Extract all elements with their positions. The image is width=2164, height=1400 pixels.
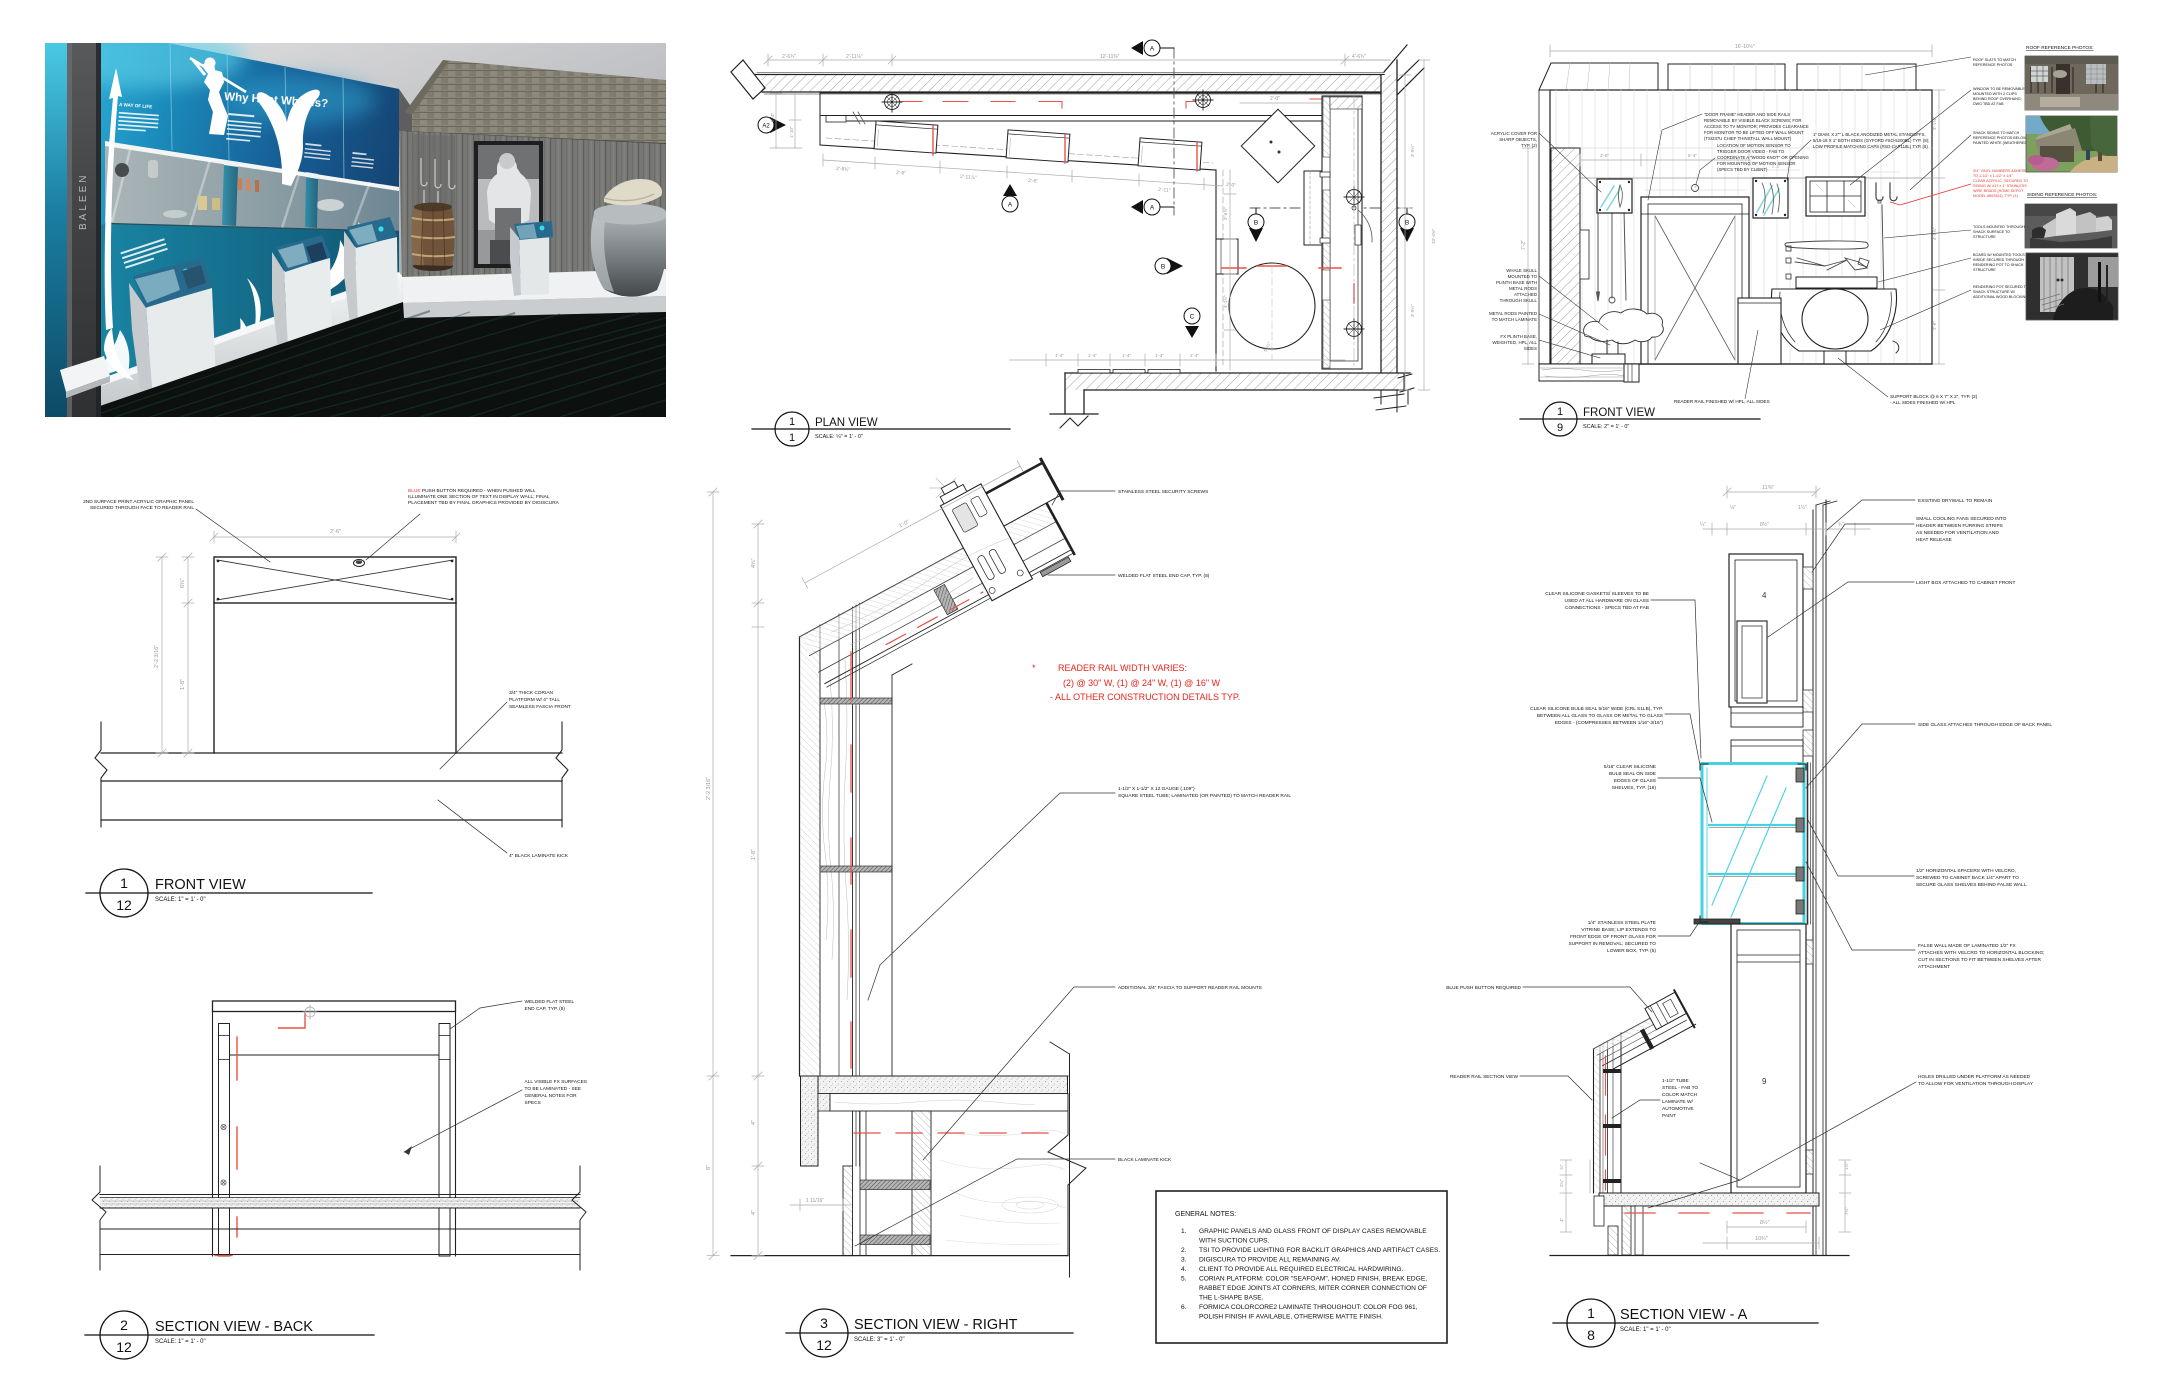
svg-text:SUPPORT BLOCK @ 6 X 7" X 2", T: SUPPORT BLOCK @ 6 X 7" X 2", TYP. (2) bbox=[1890, 394, 1978, 399]
svg-text:3/4" THICK CORIAN: 3/4" THICK CORIAN bbox=[509, 690, 554, 696]
svg-text:5/16" CLEAR SILICONE: 5/16" CLEAR SILICONE bbox=[1604, 764, 1656, 770]
svg-text:TO 1-1/2" x 1-1/2" x 1/4": TO 1-1/2" x 1-1/2" x 1/4" bbox=[1973, 174, 2013, 178]
svg-text:2'-11": 2'-11" bbox=[1158, 187, 1171, 194]
svg-text:3/4" VINYL NUMBERS ADHERED: 3/4" VINYL NUMBERS ADHERED bbox=[1973, 169, 2030, 173]
svg-text:8": 8" bbox=[706, 1165, 712, 1170]
svg-text:PAINT: PAINT bbox=[1662, 1113, 1676, 1119]
svg-text:8: 8 bbox=[1587, 1327, 1595, 1343]
svg-text:GENERAL NOTES:: GENERAL NOTES: bbox=[1175, 1211, 1236, 1218]
svg-text:10'-4⅜": 10'-4⅜" bbox=[1431, 228, 1436, 244]
svg-text:4⅝": 4⅝" bbox=[751, 558, 757, 568]
svg-text:5'-4": 5'-4" bbox=[770, 113, 775, 122]
svg-text:BALEEN: BALEEN bbox=[78, 173, 89, 230]
svg-text:FRONT VIEW: FRONT VIEW bbox=[1583, 407, 1655, 419]
svg-text:SECTION VIEW - RIGHT: SECTION VIEW - RIGHT bbox=[854, 1317, 1018, 1333]
svg-text:1'-4": 1'-4" bbox=[1190, 353, 1199, 358]
svg-text:1: 1 bbox=[1587, 1305, 1595, 1321]
svg-text:SECURED THROUGH FACE TO READER: SECURED THROUGH FACE TO READER RAIL bbox=[90, 505, 194, 511]
svg-text:CUT IN SECTIONS TO FIT BETWEEN: CUT IN SECTIONS TO FIT BETWEEN SHELVES A… bbox=[1918, 957, 2041, 963]
svg-text:B: B bbox=[1161, 264, 1165, 271]
svg-text:REFERENCE PHOTOS BELOW -: REFERENCE PHOTOS BELOW - bbox=[1973, 136, 2030, 140]
svg-text:AUTOMOTIVE: AUTOMOTIVE bbox=[1662, 1106, 1694, 1112]
svg-text:2'-6": 2'-6" bbox=[896, 170, 907, 177]
svg-text:5.: 5. bbox=[1181, 1276, 1187, 1283]
svg-text:SPECS: SPECS bbox=[525, 1100, 541, 1106]
svg-text:ACRYLIC COVER FOR: ACRYLIC COVER FOR bbox=[1491, 131, 1537, 136]
svg-text:END CAP, TYP. (8): END CAP, TYP. (8) bbox=[525, 1006, 566, 1012]
svg-text:CLEAR SILICONE BULB SEAL 5/16": CLEAR SILICONE BULB SEAL 5/16" WIDE (CRL… bbox=[1530, 706, 1663, 712]
svg-text:LOWER BOX, TYP. (5): LOWER BOX, TYP. (5) bbox=[1607, 948, 1656, 954]
svg-text:4: 4 bbox=[1762, 591, 1767, 600]
svg-text:GENERAL NOTES FOR: GENERAL NOTES FOR bbox=[525, 1093, 578, 1099]
svg-text:SECTION VIEW - BACK: SECTION VIEW - BACK bbox=[155, 1319, 313, 1335]
svg-text:1: 1 bbox=[789, 432, 795, 444]
svg-text:FOR MONITOR TO BE LIFTED OFF W: FOR MONITOR TO BE LIFTED OFF WALL MOUNT bbox=[1704, 130, 1804, 135]
svg-text:STEEL - FAB TO: STEEL - FAB TO bbox=[1662, 1085, 1698, 1091]
svg-text:SCALE: 1" = 1' - 0": SCALE: 1" = 1' - 0" bbox=[1620, 1327, 1671, 1333]
svg-text:4'-6¾": 4'-6¾" bbox=[1352, 54, 1366, 60]
svg-text:C: C bbox=[1190, 314, 1195, 321]
svg-text:2'-11⅛": 2'-11⅛" bbox=[846, 54, 863, 60]
svg-text:ACCESS TO TV MONITOR; PROVIDES: ACCESS TO TV MONITOR; PROVIDES CLEARANCE bbox=[1704, 124, 1809, 129]
svg-text:COLOR MATCH: COLOR MATCH bbox=[1662, 1092, 1698, 1098]
svg-text:SHACK SURFACE TO: SHACK SURFACE TO bbox=[1973, 230, 2010, 234]
svg-text:LAMINATE W/: LAMINATE W/ bbox=[1662, 1099, 1693, 1105]
svg-text:1'-4": 1'-4" bbox=[1122, 353, 1131, 358]
svg-text:7¼": 7¼" bbox=[1844, 1207, 1849, 1215]
svg-text:2'-0": 2'-0" bbox=[1226, 182, 1237, 189]
svg-text:LIGHT BOX ATTACHED TO CABINET: LIGHT BOX ATTACHED TO CABINET FRONT bbox=[1916, 580, 2015, 586]
svg-text:READER RAIL WIDTH VARIES:: READER RAIL WIDTH VARIES: bbox=[1058, 663, 1187, 673]
svg-text:1'-4": 1'-4" bbox=[1055, 353, 1064, 358]
svg-text:PAINTED WHITE (WEATHERED): PAINTED WHITE (WEATHERED) bbox=[1973, 141, 2028, 145]
svg-text:CLEAR SILICONE GASKETS/ SLEEVE: CLEAR SILICONE GASKETS/ SLEEVES TO BE bbox=[1545, 591, 1649, 597]
svg-text:TO BE LAMINATED - SEE: TO BE LAMINATED - SEE bbox=[525, 1086, 582, 1092]
svg-text:A: A bbox=[1150, 205, 1155, 212]
svg-text:CONNECTIONS - SPECS TBD AT FAB: CONNECTIONS - SPECS TBD AT FAB bbox=[1565, 605, 1649, 611]
svg-text:3: 3 bbox=[820, 1315, 828, 1331]
svg-text:1-1/2" TUBE: 1-1/2" TUBE bbox=[1662, 1078, 1689, 1084]
svg-text:SCREWED TO CABINET BACK 1/4" A: SCREWED TO CABINET BACK 1/4" APART TO bbox=[1916, 875, 2019, 881]
svg-text:4'-1½": 4'-1½" bbox=[1222, 295, 1228, 308]
svg-text:SIDING REFERENCE PHOTOS:: SIDING REFERENCE PHOTOS: bbox=[2027, 192, 2097, 198]
svg-text:BLACK LAMINATE KICK: BLACK LAMINATE KICK bbox=[1118, 1157, 1172, 1163]
svg-text:3'-9½": 3'-9½" bbox=[1409, 304, 1415, 317]
svg-text:8½": 8½" bbox=[1760, 521, 1769, 528]
svg-text:FRONT EDGE OF FRONT GLASS FOR: FRONT EDGE OF FRONT GLASS FOR bbox=[1570, 934, 1656, 940]
svg-text:FRONT VIEW: FRONT VIEW bbox=[155, 877, 246, 893]
svg-text:6.: 6. bbox=[1181, 1304, 1187, 1311]
svg-text:B: B bbox=[1254, 220, 1258, 227]
svg-text:4": 4" bbox=[751, 1210, 757, 1215]
svg-text:GRAPHIC PANELS AND GLASS FRONT: GRAPHIC PANELS AND GLASS FRONT OF DISPLA… bbox=[1199, 1228, 1427, 1235]
svg-text:PLINTH BASE WITH: PLINTH BASE WITH bbox=[1496, 280, 1537, 285]
svg-text:2'-6": 2'-6" bbox=[1932, 321, 1937, 330]
svg-text:1: 1 bbox=[789, 416, 795, 428]
svg-text:THE L-SHAPE BASE.: THE L-SHAPE BASE. bbox=[1199, 1295, 1264, 1302]
svg-text:RABBET EDGE JOINTS AT CORNERS,: RABBET EDGE JOINTS AT CORNERS, MITER COR… bbox=[1199, 1285, 1427, 1292]
svg-text:SCALE: 1" = 1' - 0": SCALE: 1" = 1' - 0" bbox=[155, 897, 206, 903]
svg-text:2'-11⅞": 2'-11⅞" bbox=[960, 174, 977, 181]
svg-text:ADDITIONAL WOOD BLOCKING: ADDITIONAL WOOD BLOCKING bbox=[1973, 295, 2028, 299]
svg-text:ATTACHES WITH VELCRO TO HORIZO: ATTACHES WITH VELCRO TO HORIZONTAL BLOCK… bbox=[1918, 950, 2045, 956]
svg-text:2¼": 2¼" bbox=[1559, 1179, 1564, 1187]
svg-text:2'-2 3/16": 2'-2 3/16" bbox=[706, 777, 712, 800]
svg-text:10¾": 10¾" bbox=[1755, 1236, 1768, 1242]
svg-text:ALL VISIBLE FX SURFACES: ALL VISIBLE FX SURFACES bbox=[525, 1079, 587, 1085]
svg-text:VITRINE BASE; LIP EXTENDS TO: VITRINE BASE; LIP EXTENDS TO bbox=[1581, 927, 1656, 933]
svg-text:SMALL COOLING FANS SECURED INT: SMALL COOLING FANS SECURED INTO bbox=[1916, 516, 2007, 522]
svg-text:2'-0": 2'-0" bbox=[1270, 96, 1280, 102]
svg-text:⅛": ⅛" bbox=[1730, 505, 1736, 511]
svg-text:¼": ¼" bbox=[1700, 522, 1706, 528]
svg-text:RENDERING POT SECURED TO: RENDERING POT SECURED TO bbox=[1973, 285, 2029, 289]
svg-text:(SPECS TBD BY CLIENT): (SPECS TBD BY CLIENT) bbox=[1717, 167, 1768, 172]
svg-text:FALSE WALL MADE OF LAMINATED 1: FALSE WALL MADE OF LAMINATED 1/2" FX bbox=[1918, 943, 2017, 949]
svg-text:WINDOW TO BE REMOVABLE,: WINDOW TO BE REMOVABLE, bbox=[1973, 87, 2026, 91]
svg-text:WELDED FLAT STEEL END CAP, TYP: WELDED FLAT STEEL END CAP, TYP. (8) bbox=[1118, 573, 1210, 579]
svg-text:4" BLACK LAMINATE KICK: 4" BLACK LAMINATE KICK bbox=[509, 853, 569, 859]
svg-text:12'-11⅜": 12'-11⅜" bbox=[1100, 54, 1120, 60]
svg-text:CLEAR ACRYLIC, SECURED TO: CLEAR ACRYLIC, SECURED TO bbox=[1973, 179, 2028, 183]
svg-text:SECURE GLASS SHELVES BEHIND FA: SECURE GLASS SHELVES BEHIND FALSE WALL. bbox=[1916, 882, 2028, 888]
svg-text:PLAN VIEW: PLAN VIEW bbox=[815, 417, 878, 429]
svg-text:WITH SUCTION CUPS.: WITH SUCTION CUPS. bbox=[1199, 1238, 1270, 1245]
svg-text:"DOOR FRAME" HEADER AND SIDE R: "DOOR FRAME" HEADER AND SIDE RAILS bbox=[1704, 112, 1790, 117]
svg-text:COORDINATE A "WOOD KNOT" OR OP: COORDINATE A "WOOD KNOT" OR OPENING bbox=[1717, 155, 1809, 160]
svg-text:EXISTING DRYWALL TO REMAIN: EXISTING DRYWALL TO REMAIN bbox=[1918, 498, 1993, 504]
svg-text:16'-10½": 16'-10½" bbox=[1735, 43, 1755, 50]
svg-text:REFERENCE PHOTOS: REFERENCE PHOTOS bbox=[1973, 63, 2013, 67]
svg-text:SHELVES, TYP. (18): SHELVES, TYP. (18) bbox=[1612, 785, 1657, 791]
svg-text:TO ALLOW FOR VENTILATION THROU: TO ALLOW FOR VENTILATION THROUGH DISPLAY bbox=[1918, 1081, 2034, 1087]
svg-text:THROUGH SKULL: THROUGH SKULL bbox=[1500, 298, 1538, 303]
svg-text:DIGISCURA TO PROVIDE ALL REMAI: DIGISCURA TO PROVIDE ALL REMAINING AV. bbox=[1199, 1257, 1341, 1264]
svg-text:EDGES - (COMPRESSES BETWEEN 1/: EDGES - (COMPRESSES BETWEEN 1/16"-3/16") bbox=[1555, 720, 1664, 726]
svg-text:SCALE: 2" = 1' - 0": SCALE: 2" = 1' - 0" bbox=[1583, 424, 1629, 430]
svg-text:1½": 1½" bbox=[1843, 1162, 1849, 1170]
svg-text:TOOLS MOUNTED THROUGH: TOOLS MOUNTED THROUGH bbox=[1973, 225, 2025, 229]
svg-text:STRUCTURE: STRUCTURE bbox=[1973, 268, 1996, 272]
svg-text:SIDING W/ #17 x 1" STAINLESS: SIDING W/ #17 x 1" STAINLESS bbox=[1973, 184, 2027, 188]
svg-text:USED AT ALL HARDWARE ON GLASS: USED AT ALL HARDWARE ON GLASS bbox=[1564, 598, 1649, 604]
svg-text:2'-6": 2'-6" bbox=[330, 529, 341, 535]
svg-text:STAINLESS STEEL SECURITY SCREW: STAINLESS STEEL SECURITY SCREWS bbox=[1118, 489, 1208, 495]
svg-text:2ND SURFACE PRINT ACRYLIC GRAP: 2ND SURFACE PRINT ACRYLIC GRAPHIC PANEL bbox=[83, 499, 194, 505]
svg-text:12: 12 bbox=[116, 1339, 132, 1355]
svg-text:1: 1 bbox=[120, 875, 128, 891]
svg-text:1'-8": 1'-8" bbox=[180, 679, 186, 690]
svg-text:12: 12 bbox=[816, 1337, 832, 1353]
svg-text:LOCATION OF MOTION SENSOR TO: LOCATION OF MOTION SENSOR TO bbox=[1717, 143, 1791, 148]
svg-text:1'-10": 1'-10" bbox=[789, 126, 794, 138]
svg-text:1'-4": 1'-4" bbox=[1155, 353, 1164, 358]
svg-text:3.: 3. bbox=[1181, 1257, 1187, 1264]
svg-text:4": 4" bbox=[751, 1120, 757, 1125]
svg-text:HEAT RELEASE: HEAT RELEASE bbox=[1916, 537, 1952, 543]
svg-text:1'-0": 1'-0" bbox=[898, 519, 911, 530]
svg-text:- ALL SIDES FINISHED W/ HPL: - ALL SIDES FINISHED W/ HPL bbox=[1890, 400, 1956, 405]
svg-text:A: A bbox=[1150, 46, 1155, 53]
svg-text:2'-6¾": 2'-6¾" bbox=[782, 54, 796, 60]
svg-text:A: A bbox=[1008, 202, 1013, 209]
svg-text:AS NEEDED FOR VENTILATION AND: AS NEEDED FOR VENTILATION AND bbox=[1916, 530, 1999, 536]
svg-text:BULB SEAL ON SIDE: BULB SEAL ON SIDE bbox=[1609, 771, 1656, 777]
svg-text:3'-6⅞": 3'-6⅞" bbox=[1223, 207, 1228, 220]
svg-text:WHALE SKULL: WHALE SKULL bbox=[1506, 268, 1537, 273]
svg-text:SHARP OBJECTS,: SHARP OBJECTS, bbox=[1499, 137, 1537, 142]
svg-text:*: * bbox=[1032, 663, 1036, 673]
svg-text:4.: 4. bbox=[1181, 1266, 1187, 1273]
svg-text:1'-4": 1'-4" bbox=[1088, 353, 1097, 358]
svg-text:8½": 8½" bbox=[1760, 1219, 1770, 1226]
svg-text:PLATFORM W/ 4" TALL: PLATFORM W/ 4" TALL bbox=[509, 697, 560, 703]
svg-text:5'-4": 5'-4" bbox=[1688, 153, 1697, 158]
svg-text:1/2" HORIZONTAL SPACERS WITH V: 1/2" HORIZONTAL SPACERS WITH VELCRO, bbox=[1916, 868, 2016, 874]
svg-text:POLISH FINISH IF AVAILABLE, OT: POLISH FINISH IF AVAILABLE, OTHERWISE MA… bbox=[1199, 1314, 1383, 1321]
svg-text:TSI TO PROVIDE LIGHTING FOR BA: TSI TO PROVIDE LIGHTING FOR BACKLIT GRAP… bbox=[1199, 1247, 1440, 1254]
svg-text:(TSI237U CHIEF THINSTALL WALL: (TSI237U CHIEF THINSTALL WALL MOUNT) bbox=[1704, 136, 1792, 141]
svg-text:METAL RODS: METAL RODS bbox=[1509, 286, 1537, 291]
svg-text:HEADER BETWEEN FURRING STRIPS: HEADER BETWEEN FURRING STRIPS bbox=[1916, 523, 2003, 529]
svg-text:12: 12 bbox=[116, 897, 132, 913]
svg-text:INSIDE SECURED THROUGH: INSIDE SECURED THROUGH bbox=[1973, 258, 2024, 262]
svg-text:BLUE PUSH BUTTON REQUIRED: BLUE PUSH BUTTON REQUIRED bbox=[1446, 985, 1521, 991]
svg-text:SUPPORT IN REMOVAL; SECURED TO: SUPPORT IN REMOVAL; SECURED TO bbox=[1568, 941, 1656, 947]
svg-text:SECTION VIEW - A: SECTION VIEW - A bbox=[1620, 1307, 1748, 1323]
svg-text:STRUCTURE: STRUCTURE bbox=[1973, 235, 1996, 239]
svg-text:6⅜": 6⅜" bbox=[180, 578, 186, 588]
svg-text:1.: 1. bbox=[1181, 1228, 1187, 1235]
svg-text:B: B bbox=[1405, 220, 1409, 227]
svg-text:(2) @ 30" W, (1) @ 24" W, (1): (2) @ 30" W, (1) @ 24" W, (1) @ 16" W bbox=[1063, 678, 1221, 688]
svg-text:BETWEEN ALL GLASS TO GLASS OR: BETWEEN ALL GLASS TO GLASS OR METAL TO G… bbox=[1537, 713, 1663, 719]
svg-text:SQUARE STEEL TUBE; LAMINATED (: SQUARE STEEL TUBE; LAMINATED (OR PAINTED… bbox=[1118, 793, 1291, 799]
svg-text:1/4" STAINLESS STEEL PLATE: 1/4" STAINLESS STEEL PLATE bbox=[1588, 920, 1656, 926]
svg-text:ILLUMINATE ONE SECTION OF TEXT: ILLUMINATE ONE SECTION OF TEXT IN DISPLA… bbox=[408, 494, 550, 500]
svg-text:TRIGGER DOOR VIDEO - FAB TO: TRIGGER DOOR VIDEO - FAB TO bbox=[1717, 149, 1785, 154]
svg-text:BOARD W/ MOUNTED TOOLS: BOARD W/ MOUNTED TOOLS bbox=[1973, 253, 2025, 257]
svg-text:TYP. (2): TYP. (2) bbox=[1521, 143, 1537, 148]
svg-text:¾": ¾" bbox=[1559, 1164, 1564, 1170]
svg-text:READER RAIL SECTION VIEW: READER RAIL SECTION VIEW bbox=[1450, 1074, 1519, 1080]
svg-text:ATTACHED: ATTACHED bbox=[1514, 292, 1537, 297]
svg-text:2.: 2. bbox=[1181, 1247, 1187, 1254]
svg-text:SCALE: 3" = 1' - 0": SCALE: 3" = 1' - 0" bbox=[854, 1337, 905, 1343]
svg-text:WIRE BRADS (HOME DEPOT: WIRE BRADS (HOME DEPOT bbox=[1973, 189, 2024, 193]
svg-text:CLIENT TO PROVIDE ALL REQUIRED: CLIENT TO PROVIDE ALL REQUIRED ELECTRICA… bbox=[1199, 1266, 1403, 1273]
svg-text:2'-6": 2'-6" bbox=[1028, 178, 1039, 185]
svg-text:FX PLINTH BASE,: FX PLINTH BASE, bbox=[1500, 334, 1537, 339]
svg-text:CORIAN PLATFORM: COLOR "SEAFOA: CORIAN PLATFORM: COLOR "SEAFOAM", HONED … bbox=[1199, 1276, 1427, 1283]
svg-text:3'-4": 3'-4" bbox=[1690, 184, 1699, 189]
svg-text:SIDE GLASS ATTACHES THROUGH ED: SIDE GLASS ATTACHES THROUGH EDGE OF BACK… bbox=[1918, 722, 2052, 728]
svg-text:MOUNTED TO: MOUNTED TO bbox=[1508, 274, 1538, 279]
svg-text:EDGES OF GLASS: EDGES OF GLASS bbox=[1614, 778, 1656, 784]
svg-text:3'-9½": 3'-9½" bbox=[1409, 144, 1415, 157]
svg-text:LOW PROFILE MATCHING CAPS (#SO: LOW PROFILE MATCHING CAPS (#SO-CAP118L) … bbox=[1813, 144, 1928, 149]
svg-text:FORMICA COLORCORE2 LAMINATE TH: FORMICA COLORCORE2 LAMINATE THROUGHOUT: … bbox=[1199, 1304, 1418, 1311]
svg-text:9: 9 bbox=[1557, 422, 1563, 434]
svg-text:11⅜": 11⅜" bbox=[1762, 485, 1774, 491]
svg-text:RENDERING POT TO SHACK: RENDERING POT TO SHACK bbox=[1973, 263, 2024, 267]
svg-text:1'-8": 1'-8" bbox=[751, 849, 757, 860]
svg-text:PLACEMENT TBD BY FINAL GRAPHIC: PLACEMENT TBD BY FINAL GRAPHICS PROVIDED… bbox=[408, 500, 560, 506]
svg-text:5/16-18 X 1" BOTH ENDS (GYFORD: 5/16-18 X 1" BOTH ENDS (GYFORD #SO-5200B… bbox=[1813, 138, 1929, 143]
svg-text:7'-2": 7'-2" bbox=[1521, 240, 1527, 250]
svg-text:SHACK STRUCTURE W/: SHACK STRUCTURE W/ bbox=[1973, 290, 2016, 294]
svg-text:3'-0": 3'-0" bbox=[1600, 153, 1609, 158]
svg-text:ROOF REFERENCE PHOTOS:: ROOF REFERENCE PHOTOS: bbox=[2026, 45, 2094, 51]
svg-text:FOR MOUNTING OF MOTION SENSOR: FOR MOUNTING OF MOTION SENSOR bbox=[1717, 161, 1796, 166]
svg-text:SEAMLESS FASCIA FRONT: SEAMLESS FASCIA FRONT bbox=[509, 704, 571, 710]
svg-text:TO MATCH LAMINATE: TO MATCH LAMINATE bbox=[1492, 317, 1537, 322]
svg-text:1 11/16": 1 11/16" bbox=[806, 1198, 824, 1204]
svg-text:REMOVABLE BY VISIBLE BLACK SCR: REMOVABLE BY VISIBLE BLACK SCREWS; FOR bbox=[1704, 118, 1802, 123]
svg-text:ADDITIONAL 3/4" FASCIA TO SUPP: ADDITIONAL 3/4" FASCIA TO SUPPORT READER… bbox=[1118, 985, 1262, 991]
svg-text:BLUE PUSH BUTTON REQUIRED - WH: BLUE PUSH BUTTON REQUIRED - WHEN PUSHED … bbox=[408, 488, 536, 494]
svg-text:MOUNTED WITH 2 CLIPS: MOUNTED WITH 2 CLIPS bbox=[1973, 92, 2017, 96]
svg-text:1½": 1½" bbox=[1798, 504, 1807, 511]
svg-text:1-1/2" X 1-1/2" X 12 GAUGE (.1: 1-1/2" X 1-1/2" X 12 GAUGE (.109") bbox=[1118, 786, 1195, 792]
svg-text:BEHIND ROOF OVERHANG;: BEHIND ROOF OVERHANG; bbox=[1973, 97, 2022, 101]
svg-text:READER RAIL FINISHED W/ HPL, A: READER RAIL FINISHED W/ HPL, ALL SIDES bbox=[1674, 399, 1770, 404]
svg-text:METAL RODS PAINTED: METAL RODS PAINTED bbox=[1489, 311, 1537, 316]
svg-text:SCALE: ¼" = 1' - 0": SCALE: ¼" = 1' - 0" bbox=[815, 434, 863, 440]
svg-text:1: 1 bbox=[1557, 406, 1563, 418]
svg-text:SHACK SIDING TO MATCH: SHACK SIDING TO MATCH bbox=[1973, 131, 2020, 135]
svg-text:WELDED FLAT STEEL: WELDED FLAT STEEL bbox=[525, 999, 575, 1005]
svg-text:A2: A2 bbox=[762, 124, 770, 130]
svg-text:- ALL OTHER CONSTRUCTION DETAI: - ALL OTHER CONSTRUCTION DETAILS TYP. bbox=[1050, 692, 1240, 702]
svg-text:9: 9 bbox=[1762, 1077, 1767, 1086]
svg-text:WEIGHTED, HPL, ALL: WEIGHTED, HPL, ALL bbox=[1492, 340, 1537, 345]
svg-text:SIDES: SIDES bbox=[1524, 346, 1537, 351]
svg-text:DWG TBD AT FAB: DWG TBD AT FAB bbox=[1973, 102, 2004, 106]
svg-text:4": 4" bbox=[1559, 1217, 1564, 1222]
svg-text:1" DIAM. X 2"" L BLACK ANODIZE: 1" DIAM. X 2"" L BLACK ANODIZED METAL ST… bbox=[1813, 132, 1926, 137]
svg-text:MODEL #802524), TYP. (4): MODEL #802524), TYP. (4) bbox=[1973, 194, 2018, 198]
svg-text:HOLES DRILLED UNDER PLATFORM A: HOLES DRILLED UNDER PLATFORM AS NEEDED bbox=[1918, 1074, 2031, 1080]
svg-text:ROOF SLATS TO MATCH: ROOF SLATS TO MATCH bbox=[1973, 58, 2016, 62]
svg-text:SCALE: 1" = 1' - 0": SCALE: 1" = 1' - 0" bbox=[155, 1339, 206, 1345]
svg-text:ATTACHMENT: ATTACHMENT bbox=[1918, 964, 1950, 970]
svg-text:2'-8¾": 2'-8¾" bbox=[836, 166, 851, 173]
svg-text:2'-2 3/16": 2'-2 3/16" bbox=[154, 645, 160, 668]
svg-text:2: 2 bbox=[120, 1317, 128, 1333]
